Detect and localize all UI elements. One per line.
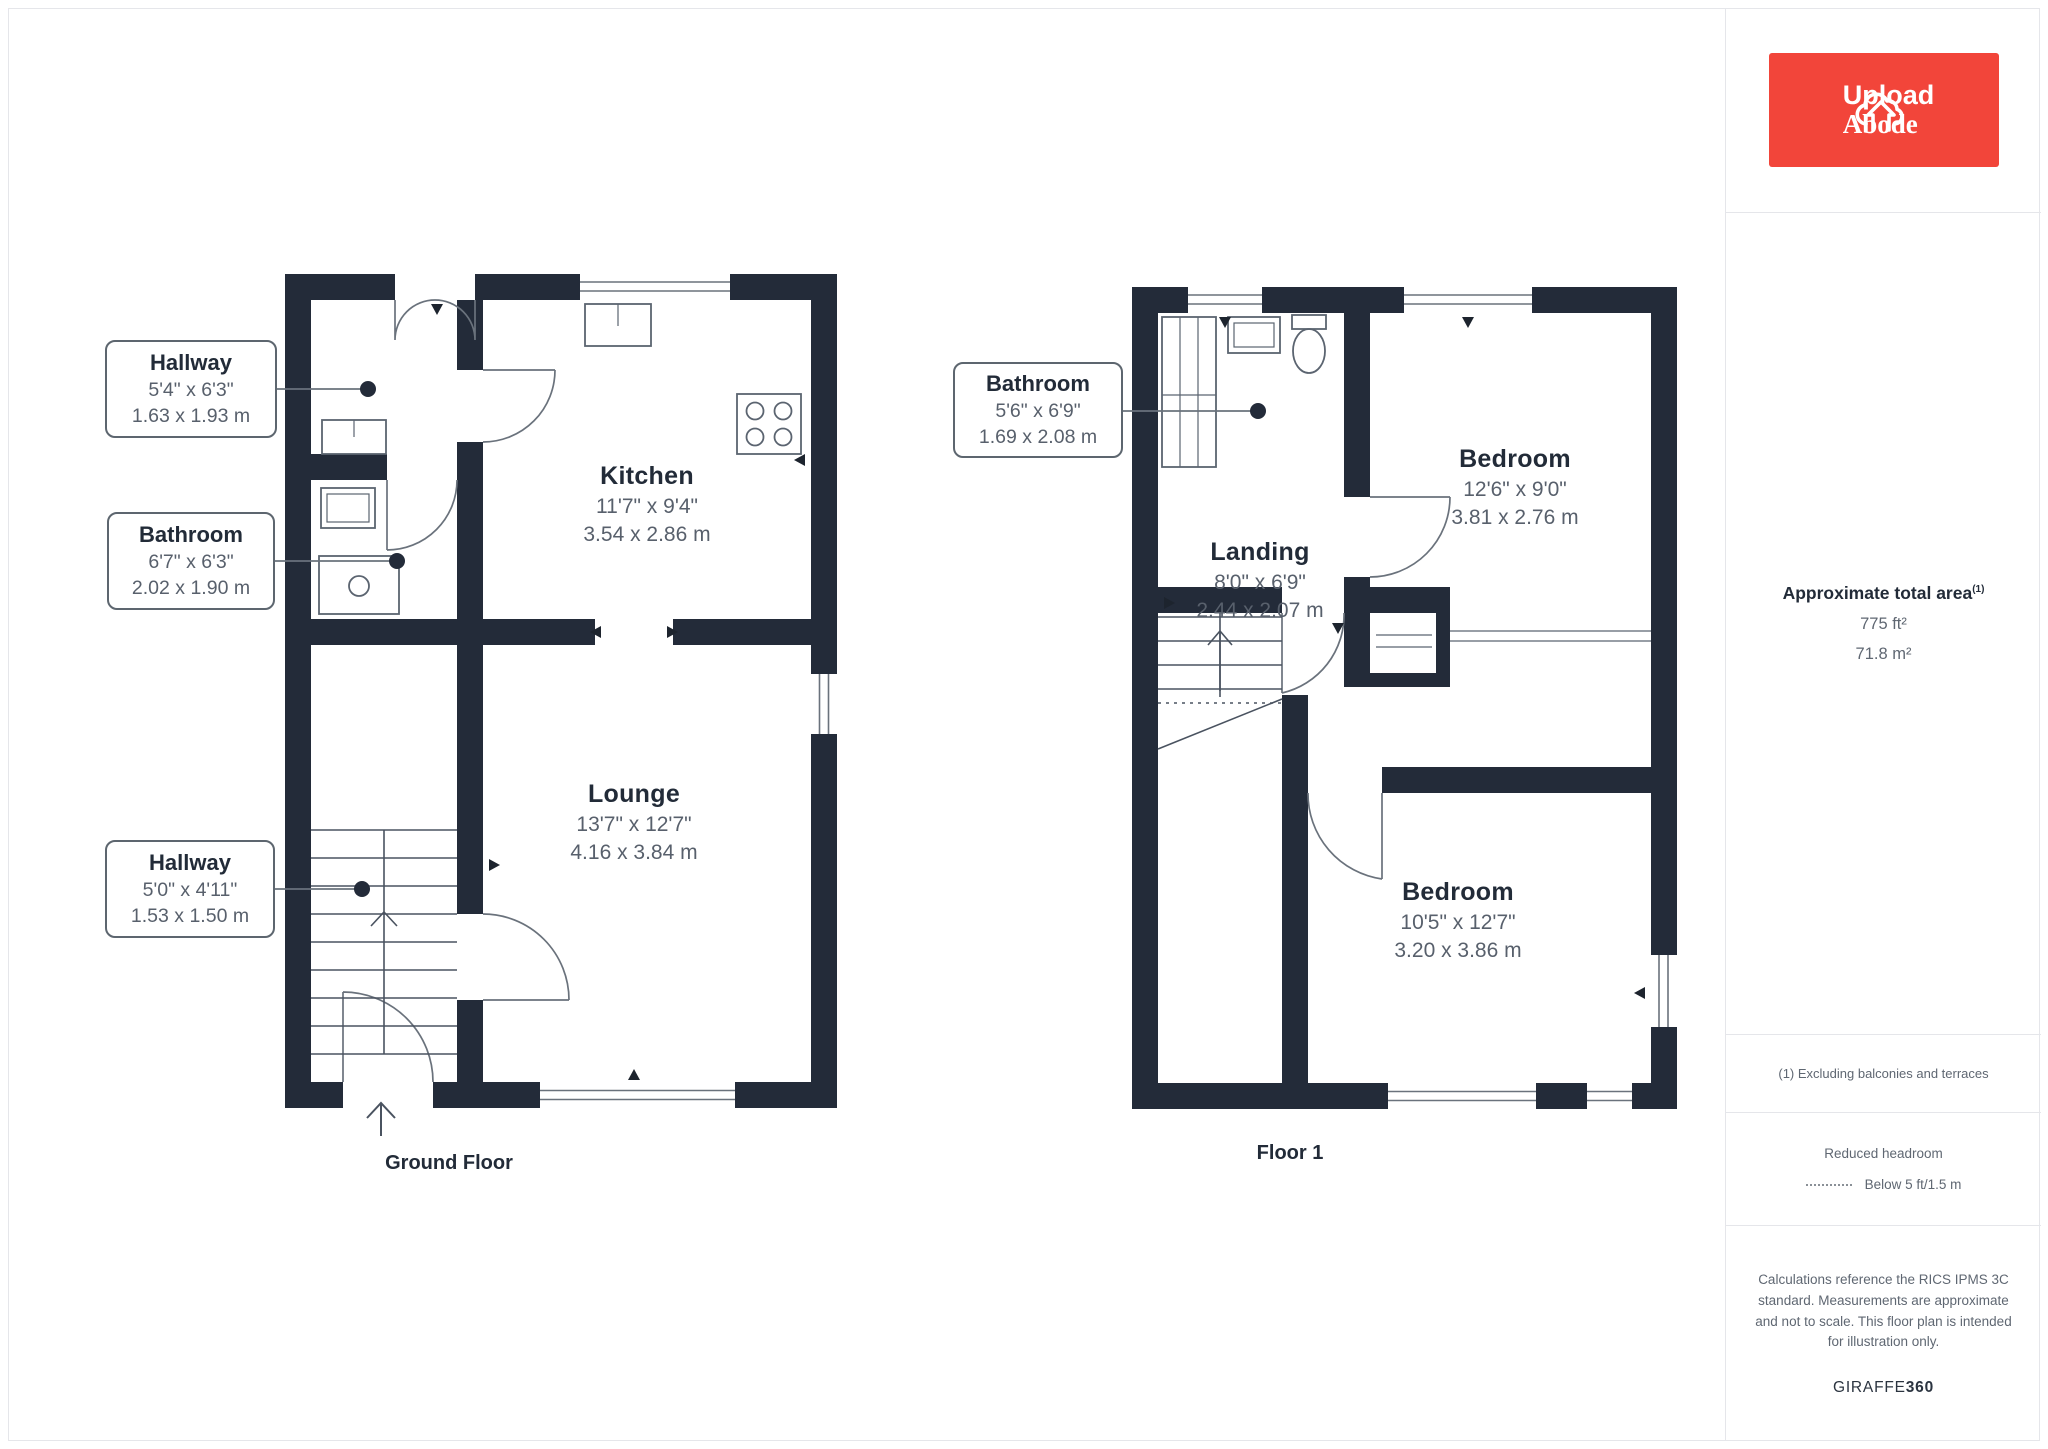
room-name: Landing xyxy=(1196,538,1323,567)
tag-bathroom-gf: Bathroom 6'7" x 6'3" 2.02 x 1.90 m xyxy=(107,512,275,610)
upload-abode-logo: Upload Abode xyxy=(1769,53,1999,167)
dot-bathroom-f1 xyxy=(1250,403,1266,419)
room-metric: 3.54 x 2.86 m xyxy=(583,523,710,547)
floorplan-page: Hallway 5'4" x 6'3" 1.63 x 1.93 m Bathro… xyxy=(0,0,2048,1449)
room-label-bedroom-top: Bedroom 12'6" x 9'0" 3.81 x 2.76 m xyxy=(1451,445,1578,530)
tag-metric: 1.63 x 1.93 m xyxy=(132,405,250,428)
total-area-label: Approximate total area xyxy=(1783,583,1973,603)
room-label-landing: Landing 8'0" x 6'9" 2.44 x 2.07 m xyxy=(1196,538,1323,623)
room-name: Bedroom xyxy=(1394,878,1521,907)
room-label-kitchen: Kitchen 11'7" x 9'4" 3.54 x 2.86 m xyxy=(583,462,710,547)
room-name: Bedroom xyxy=(1451,445,1578,474)
entrance-arrow-icon xyxy=(367,1103,395,1136)
disclaimer-text: Calculations reference the RICS IPMS 3C … xyxy=(1755,1270,2013,1354)
sidebar: Upload Abode Approximate total area(1) 7… xyxy=(1725,8,2041,1441)
tag-imperial: 5'4" x 6'3" xyxy=(148,379,233,402)
room-imperial: 11'7" x 9'4" xyxy=(583,495,710,519)
dot-hallway-top xyxy=(360,381,376,397)
tag-metric: 1.53 x 1.50 m xyxy=(131,905,249,928)
total-area-section: Approximate total area(1) 775 ft² 71.8 m… xyxy=(1726,213,2041,1035)
reduced-headroom-legend: Below 5 ft/1.5 m xyxy=(1865,1177,1962,1192)
giraffe360-brand: GIRAFFE360 xyxy=(1833,1379,1934,1397)
room-name: Lounge xyxy=(570,780,697,809)
brand-name: GIRAFFE xyxy=(1833,1379,1906,1396)
tag-imperial: 5'0" x 4'11" xyxy=(143,879,238,902)
total-area-title: Approximate total area(1) xyxy=(1783,583,1985,604)
brand-suffix: 360 xyxy=(1906,1379,1934,1396)
tag-room-name: Hallway xyxy=(149,850,231,876)
tag-metric: 2.02 x 1.90 m xyxy=(132,577,250,600)
tag-room-name: Hallway xyxy=(150,350,232,376)
room-label-lounge: Lounge 13'7" x 12'7" 4.16 x 3.84 m xyxy=(570,780,697,865)
footnote-text: (1) Excluding balconies and terraces xyxy=(1778,1066,1988,1081)
tag-room-name: Bathroom xyxy=(986,371,1090,397)
tag-hallway-bottom: Hallway 5'0" x 4'11" 1.53 x 1.50 m xyxy=(105,840,275,938)
logo-section: Upload Abode xyxy=(1726,8,2041,213)
dot-bathroom-gf xyxy=(389,553,405,569)
reduced-headroom-section: Reduced headroom Below 5 ft/1.5 m xyxy=(1726,1113,2041,1226)
tag-metric: 1.69 x 2.08 m xyxy=(979,426,1097,449)
reduced-headroom-legend-row: Below 5 ft/1.5 m xyxy=(1806,1177,1962,1192)
room-imperial: 12'6" x 9'0" xyxy=(1451,478,1578,502)
reduced-headroom-title: Reduced headroom xyxy=(1824,1146,1943,1161)
caption-floor1: Floor 1 xyxy=(1257,1142,1324,1165)
room-metric: 3.81 x 2.76 m xyxy=(1451,506,1578,530)
tag-hallway-top: Hallway 5'4" x 6'3" 1.63 x 1.93 m xyxy=(105,340,277,438)
room-label-bedroom-bottom: Bedroom 10'5" x 12'7" 3.20 x 3.86 m xyxy=(1394,878,1521,963)
room-imperial: 8'0" x 6'9" xyxy=(1196,571,1323,595)
disclaimer-section: Calculations reference the RICS IPMS 3C … xyxy=(1726,1226,2041,1441)
room-name: Kitchen xyxy=(583,462,710,491)
tag-imperial: 6'7" x 6'3" xyxy=(148,551,233,574)
dot-hallway-bottom xyxy=(354,881,370,897)
room-metric: 2.44 x 2.07 m xyxy=(1196,599,1323,623)
room-metric: 3.20 x 3.86 m xyxy=(1394,939,1521,963)
tag-imperial: 5'6" x 6'9" xyxy=(995,400,1080,423)
total-area-footnote-ref: (1) xyxy=(1972,584,1984,595)
tag-bathroom-f1: Bathroom 5'6" x 6'9" 1.69 x 2.08 m xyxy=(953,362,1123,458)
room-metric: 4.16 x 3.84 m xyxy=(570,841,697,865)
tag-room-name: Bathroom xyxy=(139,522,243,548)
cloud-house-icon xyxy=(1851,82,1917,138)
room-imperial: 13'7" x 12'7" xyxy=(570,813,697,837)
room-imperial: 10'5" x 12'7" xyxy=(1394,911,1521,935)
footnote-section: (1) Excluding balconies and terraces xyxy=(1726,1035,2041,1113)
total-area-imperial: 775 ft² xyxy=(1860,615,1907,634)
caption-ground-floor: Ground Floor xyxy=(385,1152,513,1175)
dotted-line-icon xyxy=(1806,1184,1852,1186)
total-area-metric: 71.8 m² xyxy=(1856,645,1912,664)
